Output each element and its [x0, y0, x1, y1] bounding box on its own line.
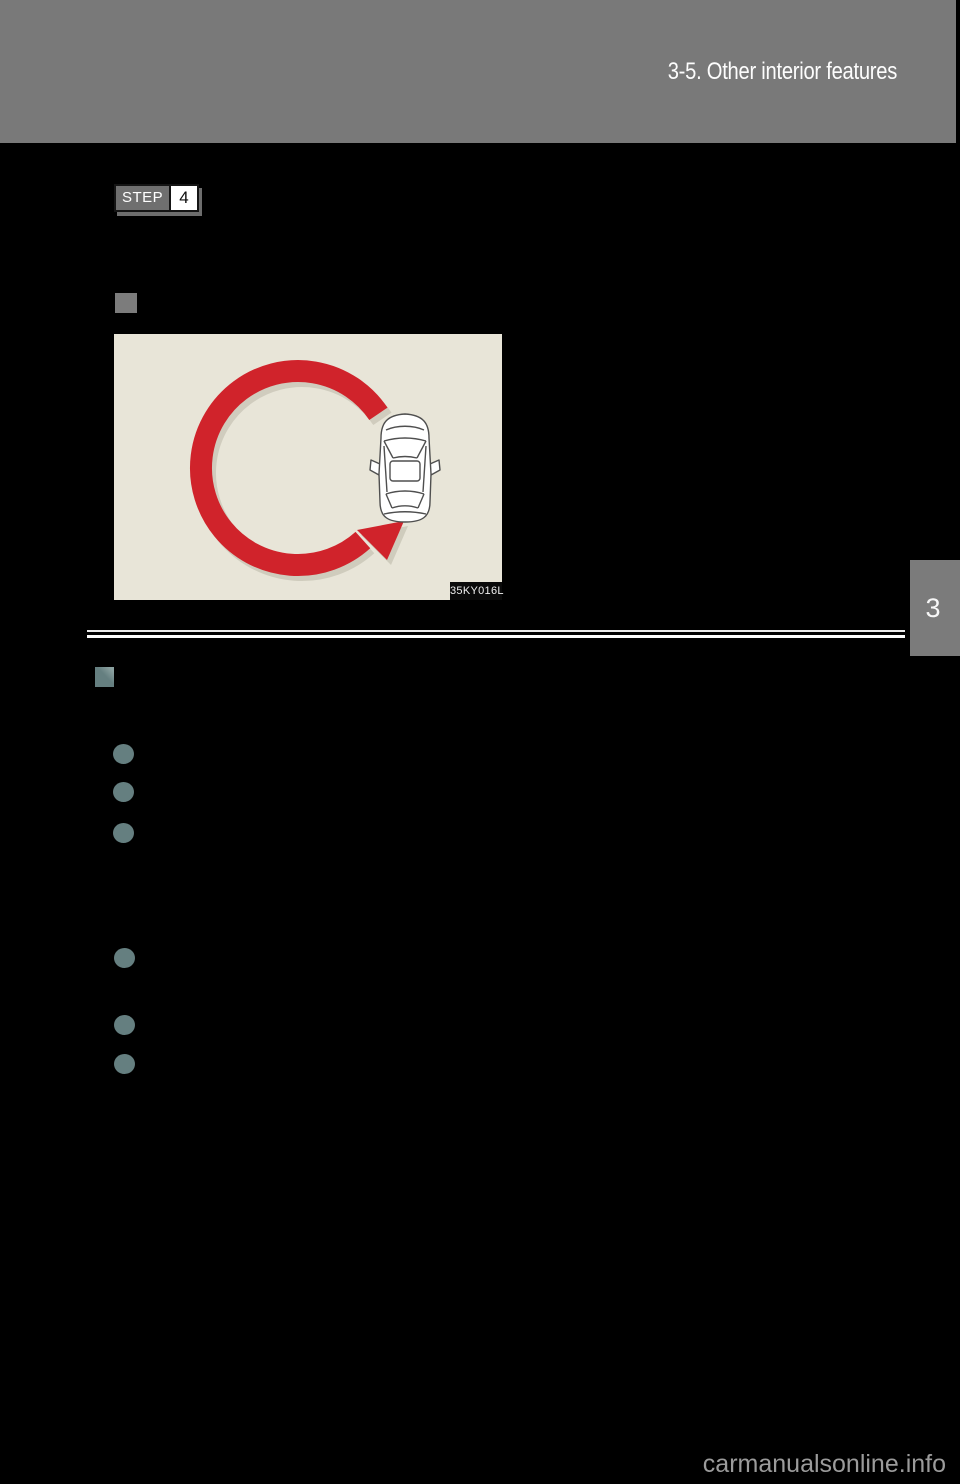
section-divider: [87, 630, 905, 638]
circle-bullet-icon: [113, 744, 134, 764]
page-title: 3-5. Other interior features: [668, 57, 897, 87]
car-top-view-icon: [370, 414, 440, 522]
circle-bullet-icon: [114, 1015, 135, 1035]
watermark-text: carmanualsonline.info: [703, 1450, 946, 1479]
header-band: 3-5. Other interior features: [0, 0, 956, 143]
square-bullet-icon: [95, 667, 114, 687]
figure-code-label: 35KY016L: [450, 582, 502, 600]
step-marker: STEP 4: [114, 184, 199, 212]
square-bullet-icon: [115, 293, 137, 313]
chapter-number: 3: [925, 593, 944, 624]
circle-bullet-icon: [113, 823, 134, 843]
circle-bullet-icon: [114, 948, 135, 968]
circle-drive-diagram: [114, 334, 502, 600]
circle-bullet-icon: [114, 1054, 135, 1074]
circle-bullet-icon: [113, 782, 134, 802]
circle-drive-figure: 35KY016L: [114, 334, 502, 600]
chapter-tab: 3: [910, 560, 960, 656]
step-marker-number: 4: [169, 186, 196, 210]
step-marker-label: STEP: [116, 186, 169, 210]
